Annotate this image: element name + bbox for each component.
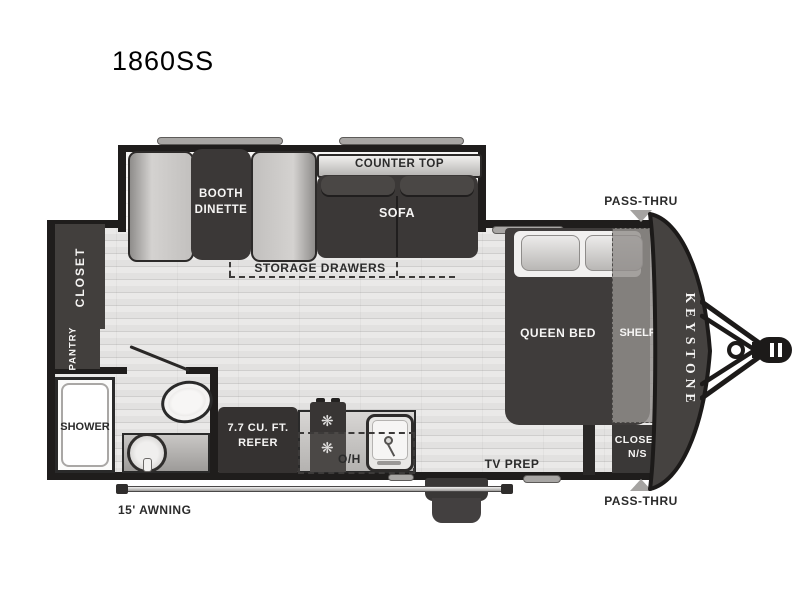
sofa-label: SOFA [347,206,447,220]
refer-label: 7.7 CU. FT. REFER [218,421,298,451]
storage-drawers-riser-left [229,262,231,276]
slideout-window-right [339,137,464,145]
floorplan-canvas: 1860SS BOOTH DINETTE COUNTER TOP SOFA ST… [0,0,800,600]
slideout-left-wall [118,145,126,232]
tv-prep-label: TV PREP [462,457,562,471]
brand-label: KEYSTONE [678,240,698,460]
rear-wall [47,220,55,480]
hitch-icon [700,290,800,410]
awning-cap-left [116,484,128,494]
overhead-label: O/H [338,452,361,466]
entry-door-marker [523,475,561,483]
awning-label: 15' AWNING [118,503,191,517]
pass-thru-bottom-label: PASS-THRU [591,494,691,508]
bottom-wall-marker-left [388,474,414,481]
bath-right-wall [210,367,218,474]
sofa-back-cushion-left [321,176,395,195]
storage-drawers-label: STORAGE DRAWERS [240,261,400,275]
booth-dinette-label: BOOTH DINETTE [186,186,256,218]
burner-icon-top: ❋ [321,414,334,429]
awning-bar [118,486,512,492]
bedroom-partition [583,425,595,475]
shower-label: SHOWER [55,421,115,433]
pass-thru-top-label: PASS-THRU [591,194,691,208]
queen-bed-label: QUEEN BED [508,326,608,340]
pillow-left [521,235,580,271]
page-title: 1860SS [112,46,214,77]
sofa-back-cushion-right [400,176,474,195]
storage-drawers-line [229,276,455,278]
dinette-bench-left [128,151,194,262]
awning-cap-right [501,484,513,494]
slideout-window-left [157,137,283,145]
dinette-bench-right [251,151,317,262]
entry-step-lower [432,498,481,523]
counter-top-label: COUNTER TOP [317,158,482,170]
storage-drawers-riser-right [396,262,398,276]
bath-sink-faucet [143,458,152,472]
